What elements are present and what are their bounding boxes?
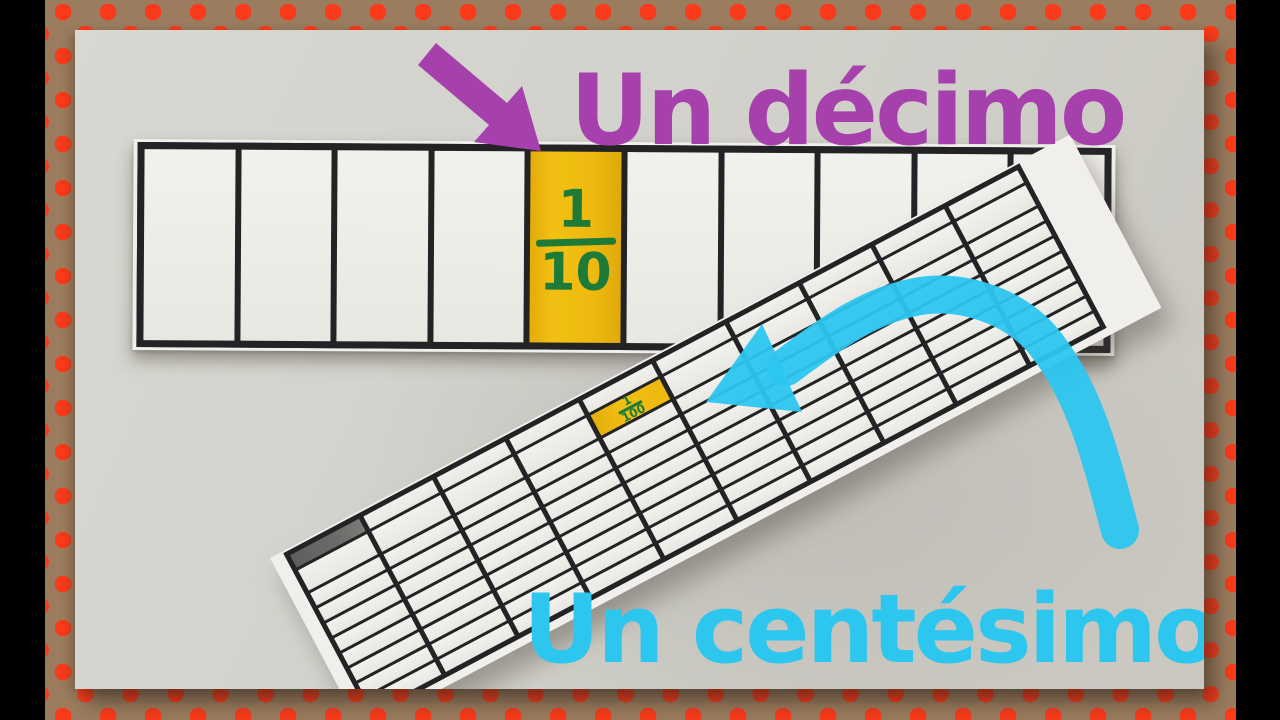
fraction-denominator: 10 [535, 249, 615, 297]
fraction-numerator: 1 [536, 187, 616, 235]
fraction-one-tenth: 110 [535, 187, 616, 298]
tenth-cell-3 [337, 150, 429, 342]
video-frame: 110 1100 Un décimo Un centésimo [0, 0, 1280, 720]
hundredth-label: Un centésimo [523, 575, 1204, 685]
tenth-cell-2 [240, 150, 332, 342]
tenth-cell-5: 110 [530, 151, 622, 343]
tenth-arrow-icon [418, 43, 541, 151]
tenth-cell-6 [626, 152, 718, 344]
tenth-cell-1 [143, 149, 235, 341]
tenth-cell-4 [433, 151, 525, 343]
photo-area: 110 1100 Un décimo Un centésimo [75, 30, 1204, 689]
polka-dot-border: 110 1100 Un décimo Un centésimo [45, 0, 1236, 720]
tenth-label: Un décimo [570, 54, 1124, 168]
